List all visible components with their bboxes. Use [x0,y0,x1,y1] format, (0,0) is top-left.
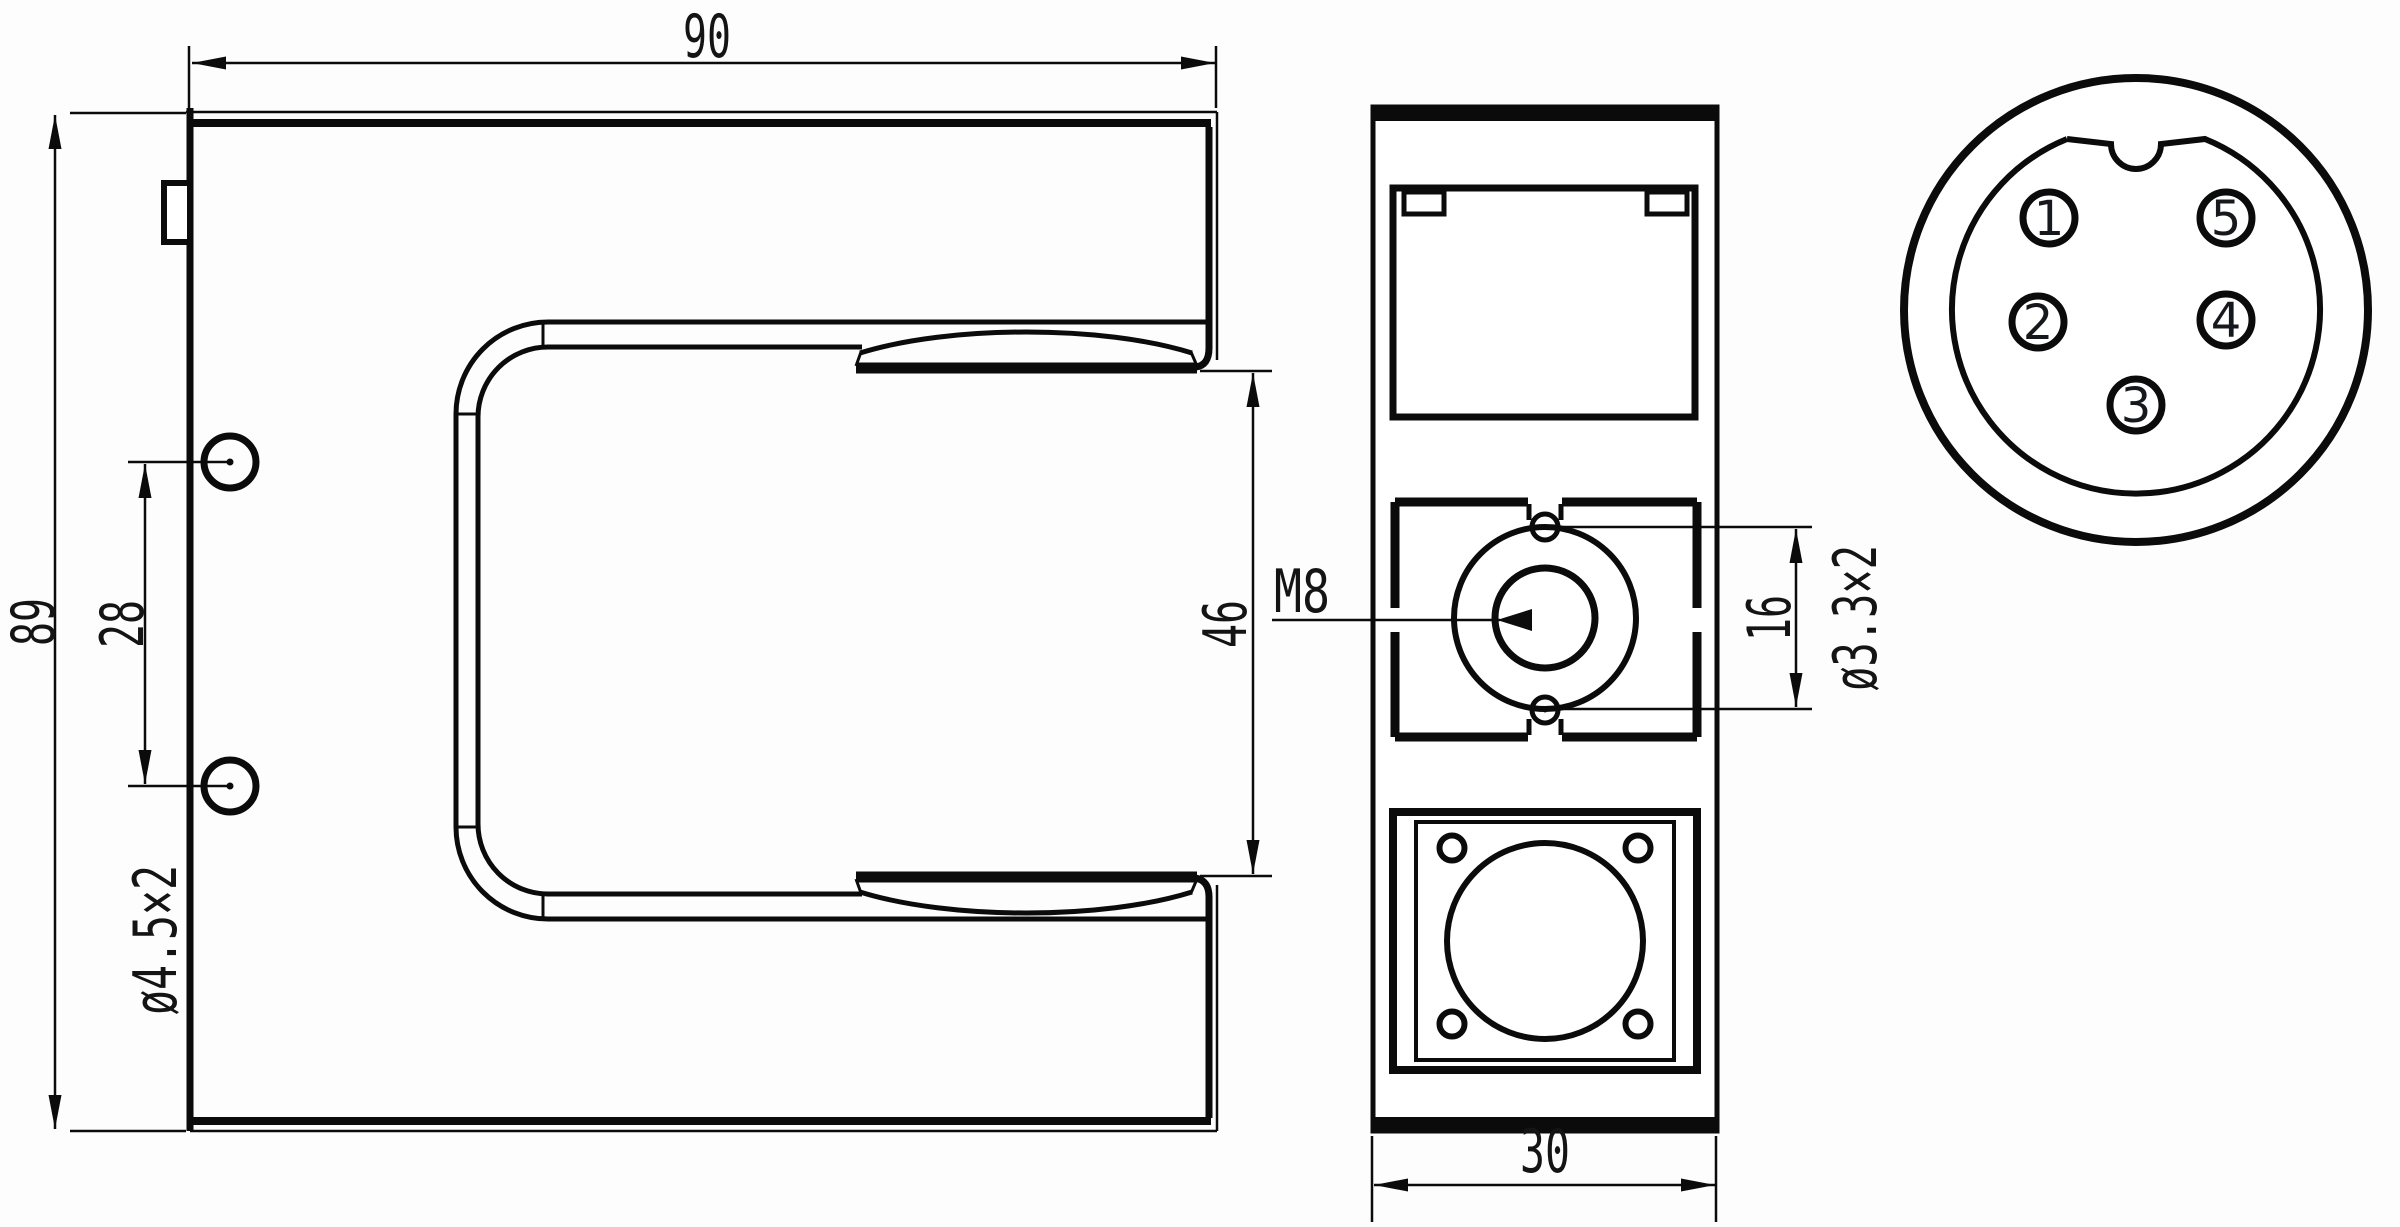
dim-front-width: 90 [189,2,1216,108]
pin-2-label: 2 [2023,295,2054,351]
side-small-hole-bottom-center [1543,708,1548,713]
dim-front-hole-spacing: 28 [88,462,233,786]
dim-46-value: 46 [1191,600,1261,648]
dim-90-arrow-left [192,57,226,70]
dim-16-arrow-bottom [1790,673,1803,707]
pin-4-label: 4 [2211,293,2242,349]
dim-90-value: 90 [683,2,731,72]
dim-28-value: 28 [88,600,158,648]
dim-30-arrow-right [1681,1179,1715,1192]
front-view: 90 89 28 ø4.5×2 46 [0,2,1272,1131]
pin-5-label: 5 [2211,191,2242,247]
dim-front-slot-height: 46 [1191,371,1272,876]
callout-m8-value: M8 [1274,557,1330,627]
dim-89-value: 89 [0,598,69,646]
front-slot-inner-contour [478,347,862,894]
dim-89-arrow-top [49,115,62,149]
dim-46-arrow-bottom [1247,840,1260,874]
pin-3-label: 3 [2121,378,2152,434]
dim-30-arrow-left [1374,1179,1408,1192]
connector-outer-ring [1904,78,2368,542]
dim-46-arrow-top [1247,373,1260,407]
drawing-page: 90 89 28 ø4.5×2 46 [0,0,2400,1227]
front-side-tab [164,183,190,242]
dim-90-arrow-right [1181,57,1215,70]
technical-drawing: 90 89 28 ø4.5×2 46 [0,0,2400,1227]
dim-28-arrow-top [139,464,152,498]
side-top-face-band [1373,107,1717,121]
dim-89-arrow-bottom [49,1095,62,1129]
front-slot-contour-ticks [456,322,543,919]
dim-16-arrow-top [1790,529,1803,563]
side-hole-callout: ø3.3×2 [1821,545,1891,691]
front-lens-bottom-arc [860,892,1192,913]
front-hole-callout: ø4.5×2 [121,865,191,1015]
front-arm-top-tip-face [1195,127,1209,367]
pin-1-label: 1 [2034,191,2065,247]
connector-view: 1 2 3 4 5 [1904,78,2368,542]
dim-28-arrow-bottom [139,750,152,784]
side-view: M8 16 ø3.3×2 30 [1272,107,1891,1222]
side-small-hole-top-center [1543,525,1548,530]
front-slot-outer-contour [456,322,1207,919]
front-arm-bottom-tip-face [1195,878,1209,1118]
dim-30-value: 30 [1520,1117,1570,1187]
front-lens-top-arc [860,332,1192,353]
dim-16-value: 16 [1735,595,1805,641]
